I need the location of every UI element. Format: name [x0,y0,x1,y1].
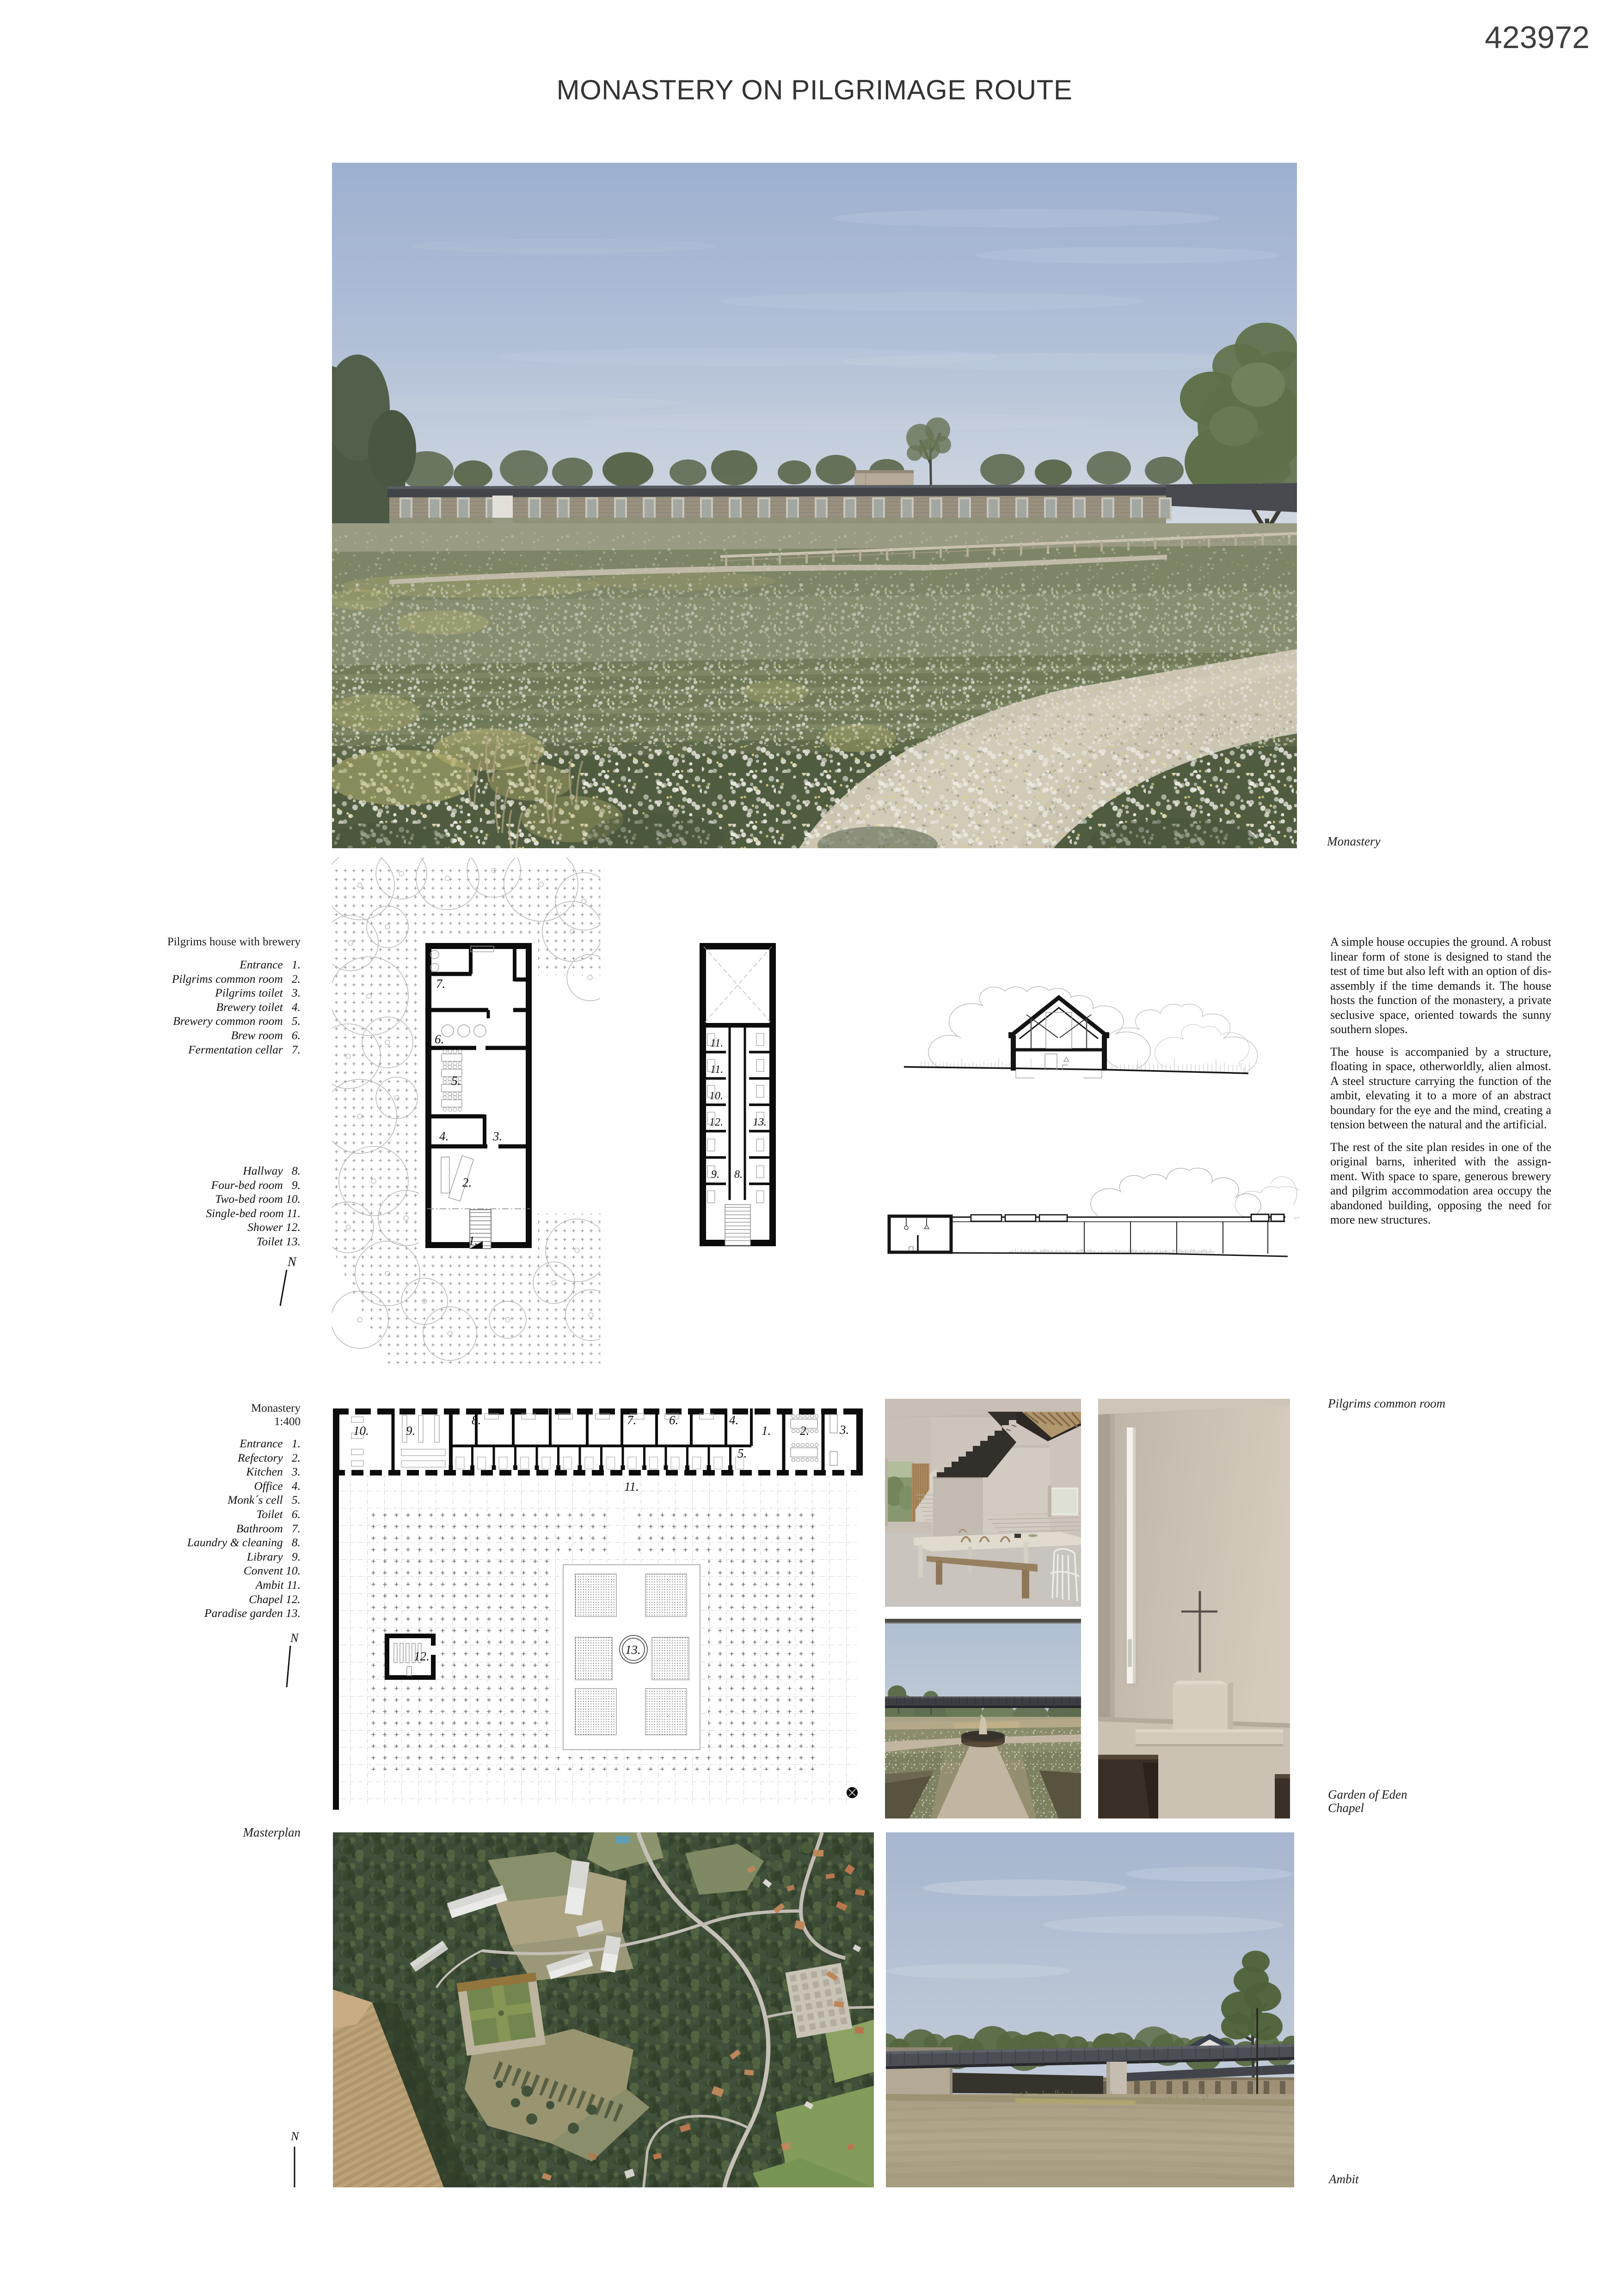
svg-text:N: N [287,1255,297,1269]
svg-text:11.: 11. [710,1064,723,1076]
svg-text:4.: 4. [439,1129,449,1143]
svg-text:5.: 5. [451,1074,461,1088]
svg-text:7.: 7. [627,1413,636,1427]
svg-text:5.: 5. [737,1446,747,1460]
svg-text:8.: 8. [734,1169,743,1181]
svg-text:9.: 9. [406,1424,415,1438]
svg-text:N: N [290,1632,299,1645]
svg-text:N: N [290,2131,300,2143]
svg-text:13.: 13. [753,1116,767,1128]
svg-text:1.: 1. [468,1234,478,1248]
svg-text:13.: 13. [625,1643,641,1657]
svg-text:12.: 12. [709,1116,723,1128]
svg-text:10.: 10. [709,1090,723,1102]
svg-text:10.: 10. [353,1424,369,1438]
svg-text:12.: 12. [414,1649,430,1663]
svg-text:11.: 11. [624,1480,639,1494]
svg-text:2.: 2. [800,1424,809,1438]
svg-text:1.: 1. [762,1424,771,1438]
svg-text:9.: 9. [711,1169,719,1181]
svg-text:3.: 3. [839,1423,849,1437]
svg-text:11.: 11. [710,1037,723,1049]
svg-text:6.: 6. [669,1413,678,1427]
svg-text:3.: 3. [492,1129,502,1143]
svg-text:7.: 7. [436,977,445,991]
svg-text:8.: 8. [472,1413,481,1427]
svg-text:2.: 2. [462,1176,472,1189]
svg-text:4.: 4. [729,1413,738,1427]
svg-text:6.: 6. [435,1032,444,1046]
